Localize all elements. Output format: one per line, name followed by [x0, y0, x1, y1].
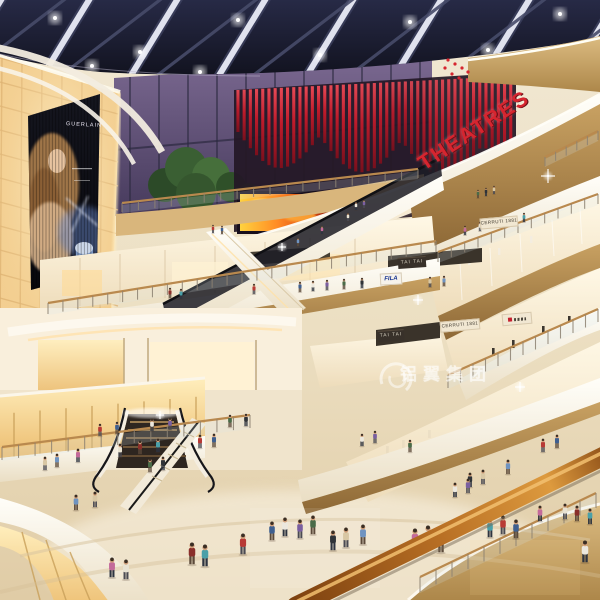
store-sign-tai-tai-lower: TAI TAI	[378, 329, 405, 342]
mall-render-canvas	[0, 0, 600, 600]
logo-text-bars	[514, 317, 526, 321]
mall-atrium-rendering: THEATRES GUERLAIN FILA TAI TAI TAI TAI C…	[0, 0, 600, 600]
red-logo-icon	[508, 317, 512, 321]
watermark-text: 铝翼集团	[400, 366, 492, 383]
store-sign-fila: FILA	[380, 272, 403, 285]
store-sign-tai-tai-upper: TAI TAI	[398, 256, 427, 269]
